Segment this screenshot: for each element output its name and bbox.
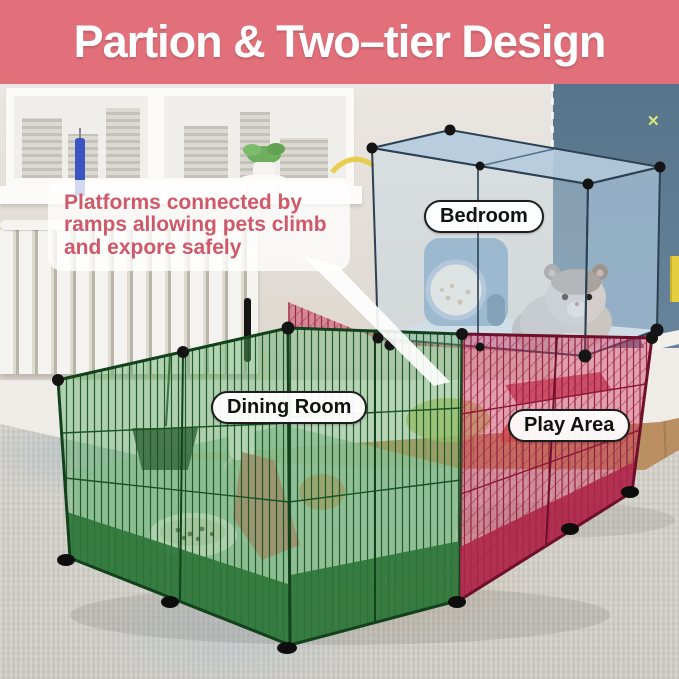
banana <box>332 159 374 172</box>
play-area-panels <box>460 334 652 600</box>
playpen-illustration <box>0 0 679 679</box>
annotation-text: Platforms connected by ramps allowing pe… <box>64 192 342 259</box>
product-image: Partion & Two–tier Design ✕ <box>0 0 679 679</box>
dining-room-panels <box>58 328 462 645</box>
label-bedroom: Bedroom <box>424 200 544 233</box>
bedroom-cube <box>372 130 660 356</box>
annotation-bubble: Platforms connected by ramps allowing pe… <box>48 180 350 271</box>
label-dining-room: Dining Room <box>211 391 367 424</box>
label-play-area: Play Area <box>508 409 630 442</box>
